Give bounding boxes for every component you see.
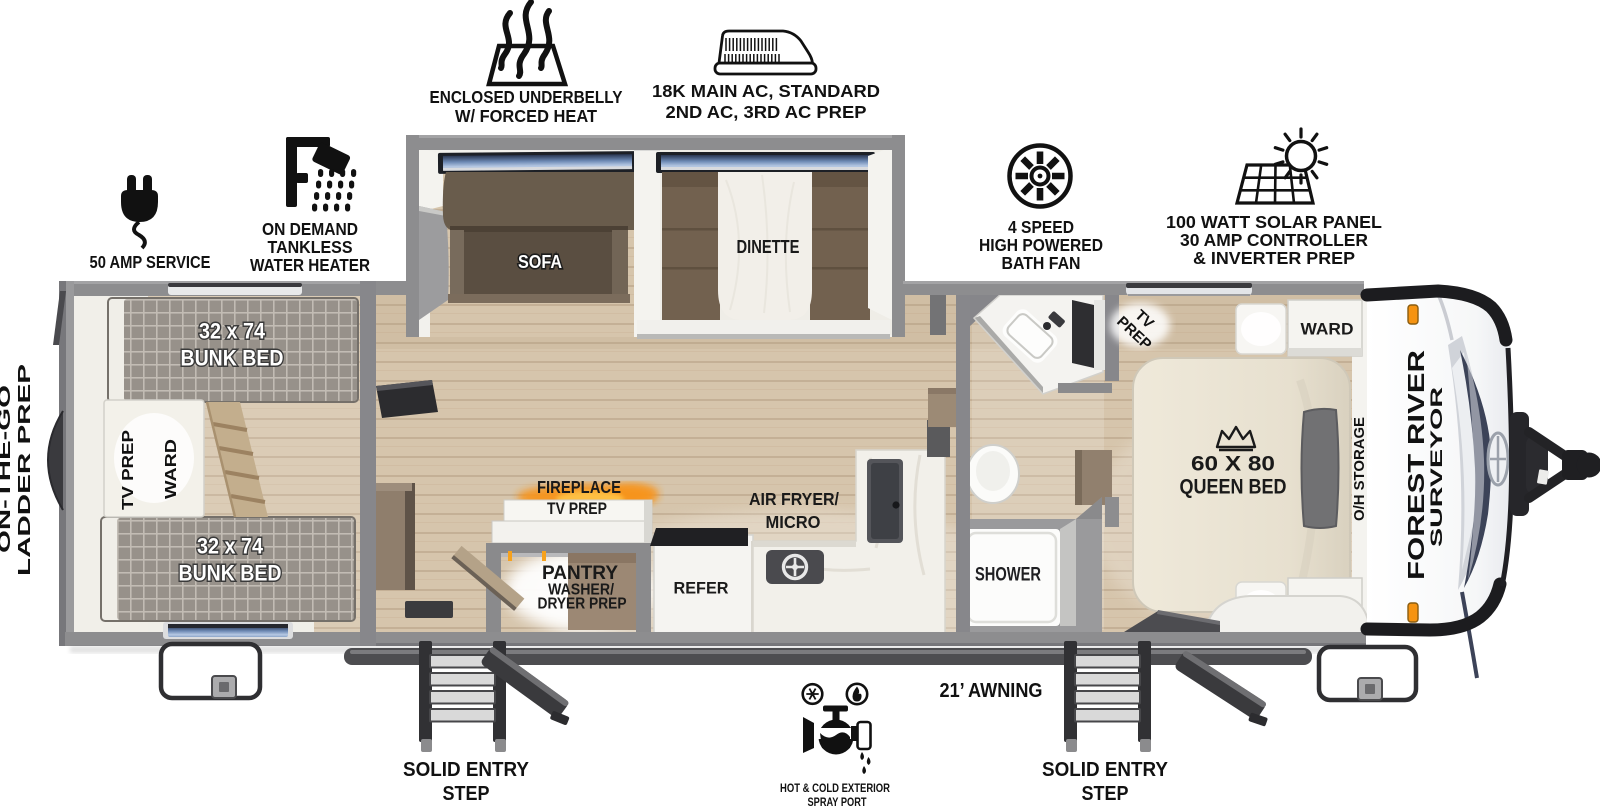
svg-text:100 WATT SOLAR PANEL: 100 WATT SOLAR PANEL bbox=[1166, 212, 1382, 232]
svg-text:W/ FORCED HEAT: W/ FORCED HEAT bbox=[455, 106, 597, 126]
svg-text:60 X 80: 60 X 80 bbox=[1191, 453, 1275, 476]
svg-text:FIREPLACE: FIREPLACE bbox=[537, 477, 621, 497]
svg-text:BATH FAN: BATH FAN bbox=[1002, 253, 1081, 273]
svg-text:DRYER PREP: DRYER PREP bbox=[538, 596, 627, 613]
svg-text:O/H STORAGE: O/H STORAGE bbox=[1351, 417, 1368, 521]
svg-text:30 AMP CONTROLLER: 30 AMP CONTROLLER bbox=[1180, 230, 1368, 250]
svg-text:SOLID ENTRY: SOLID ENTRY bbox=[403, 759, 530, 781]
svg-text:WARD: WARD bbox=[163, 439, 180, 499]
svg-text:TV PREP: TV PREP bbox=[120, 430, 137, 510]
svg-text:STEP: STEP bbox=[1082, 783, 1129, 805]
svg-text:ON DEMAND: ON DEMAND bbox=[262, 219, 358, 239]
svg-text:TV PREP: TV PREP bbox=[547, 500, 607, 518]
svg-text:FOREST RIVER: FOREST RIVER bbox=[1403, 350, 1429, 580]
svg-text:REFER: REFER bbox=[674, 579, 729, 598]
svg-text:BUNK BED: BUNK BED bbox=[179, 561, 282, 586]
svg-text:& INVERTER PREP: & INVERTER PREP bbox=[1193, 248, 1355, 268]
svg-text:SPRAY PORT: SPRAY PORT bbox=[808, 797, 867, 809]
svg-text:50 AMP SERVICE: 50 AMP SERVICE bbox=[90, 252, 211, 272]
svg-text:MICRO: MICRO bbox=[766, 512, 821, 532]
svg-text:STEP: STEP bbox=[443, 783, 490, 805]
svg-text:DINETTE: DINETTE bbox=[737, 237, 800, 257]
svg-text:HIGH POWERED: HIGH POWERED bbox=[979, 235, 1103, 255]
svg-text:2ND AC, 3RD AC PREP: 2ND AC, 3RD AC PREP bbox=[666, 102, 867, 122]
svg-text:SURVEYOR: SURVEYOR bbox=[1428, 387, 1446, 547]
svg-text:TANKLESS: TANKLESS bbox=[268, 237, 353, 257]
svg-text:21’ AWNING: 21’ AWNING bbox=[940, 680, 1043, 702]
svg-text:ON-THE-GO: ON-THE-GO bbox=[0, 385, 14, 553]
svg-text:SHOWER: SHOWER bbox=[975, 565, 1041, 586]
svg-text:QUEEN BED: QUEEN BED bbox=[1180, 476, 1287, 499]
svg-text:WATER HEATER: WATER HEATER bbox=[250, 255, 370, 275]
svg-text:HOT & COLD EXTERIOR: HOT & COLD EXTERIOR bbox=[780, 783, 891, 795]
svg-text:32 x 74: 32 x 74 bbox=[197, 534, 264, 559]
svg-text:LADDER PREP: LADDER PREP bbox=[14, 363, 34, 576]
svg-text:SOFA: SOFA bbox=[518, 252, 562, 272]
svg-text:SOLID ENTRY: SOLID ENTRY bbox=[1042, 759, 1169, 781]
svg-text:WARD: WARD bbox=[1301, 320, 1354, 339]
svg-text:AIR FRYER/: AIR FRYER/ bbox=[749, 489, 839, 509]
svg-text:ENCLOSED UNDERBELLY: ENCLOSED UNDERBELLY bbox=[430, 87, 623, 107]
svg-text:32 x 74: 32 x 74 bbox=[199, 319, 266, 344]
svg-text:18K MAIN AC, STANDARD: 18K MAIN AC, STANDARD bbox=[652, 81, 880, 101]
svg-text:BUNK BED: BUNK BED bbox=[181, 346, 284, 371]
svg-text:4 SPEED: 4 SPEED bbox=[1008, 217, 1074, 237]
